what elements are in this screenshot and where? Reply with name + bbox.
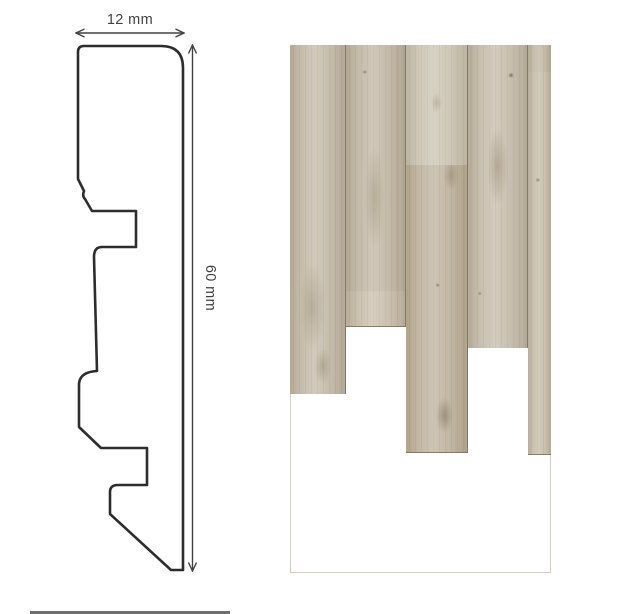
floor-plank — [406, 45, 468, 165]
product-detail-canvas: 12 mm 60 mm — [0, 0, 628, 614]
oak-decor-swatch — [290, 45, 551, 573]
floor-plank — [290, 45, 346, 394]
height-dimension-label: 60 mm — [202, 265, 218, 311]
skirting-profile-outline — [78, 46, 183, 570]
floor-plank — [468, 45, 528, 348]
floor-plank — [528, 45, 551, 72]
width-dimension-label: 12 mm — [107, 12, 153, 28]
floor-plank — [528, 45, 551, 455]
skirting-profile-drawing: 12 mm 60 mm — [0, 0, 260, 614]
floor-plank — [346, 45, 406, 291]
